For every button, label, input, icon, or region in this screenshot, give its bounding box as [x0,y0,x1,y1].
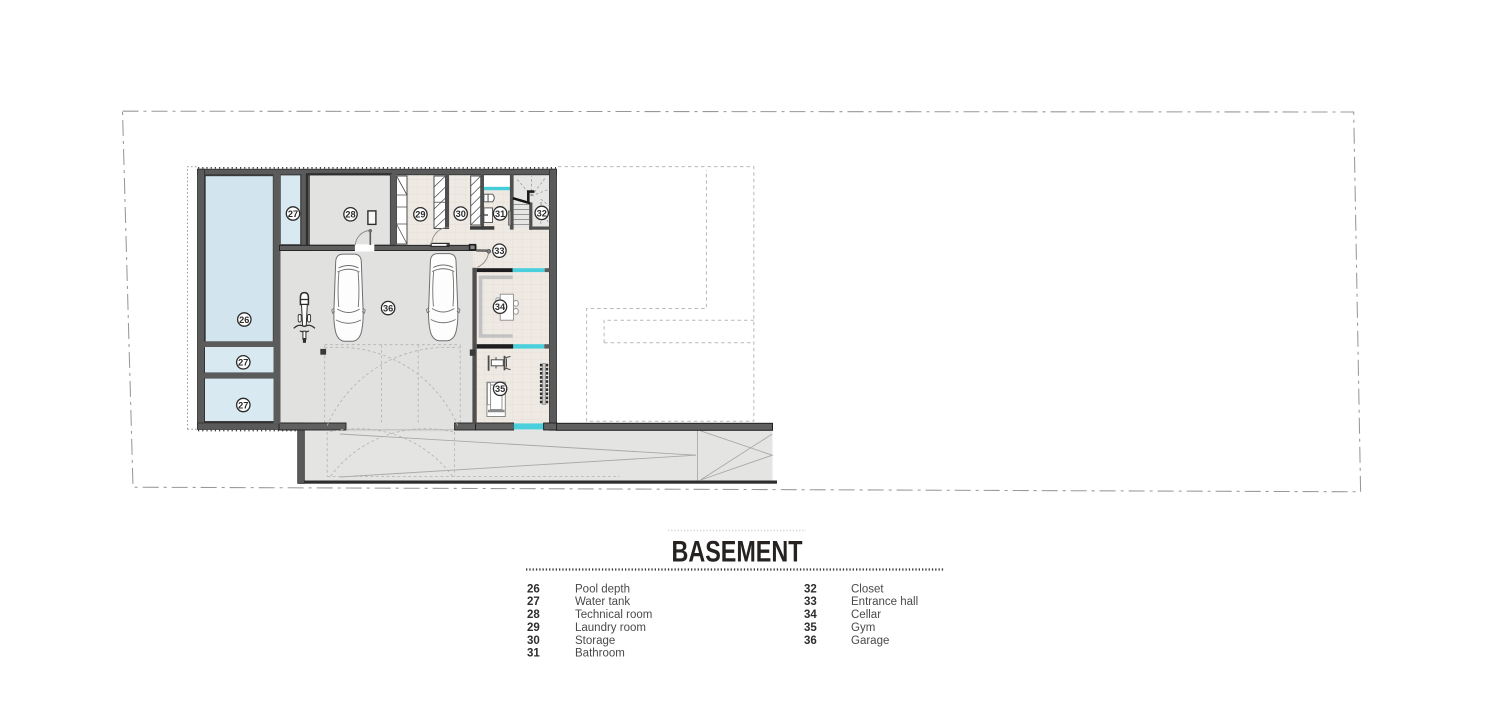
svg-text:Gym: Gym [851,622,875,634]
svg-text:Cellar: Cellar [851,609,881,621]
svg-text:Pool depth: Pool depth [575,583,630,595]
svg-text:36: 36 [804,635,817,647]
svg-text:29: 29 [527,622,540,634]
svg-text:Garage: Garage [851,635,889,647]
svg-text:27: 27 [288,209,298,219]
svg-text:30: 30 [527,635,540,647]
svg-text:BASEMENT: BASEMENT [672,536,803,569]
svg-text:33: 33 [804,596,817,608]
svg-text:27: 27 [238,400,248,410]
svg-text:28: 28 [345,210,355,220]
svg-text:Bathroom: Bathroom [575,648,625,660]
svg-text:36: 36 [383,304,393,314]
svg-text:27: 27 [238,358,248,368]
svg-text:32: 32 [804,583,817,595]
svg-text:Laundry room: Laundry room [575,622,646,634]
svg-text:34: 34 [495,302,506,312]
svg-text:28: 28 [527,609,540,621]
svg-text:Water tank: Water tank [575,596,630,608]
svg-text:26: 26 [239,315,249,325]
svg-text:Closet: Closet [851,583,884,595]
svg-text:Entrance hall: Entrance hall [851,596,918,608]
svg-text:31: 31 [495,209,505,219]
svg-text:Storage: Storage [575,635,615,647]
svg-text:32: 32 [537,208,547,218]
svg-text:35: 35 [495,384,505,394]
svg-text:27: 27 [527,596,540,608]
svg-text:33: 33 [494,246,504,256]
svg-text:31: 31 [527,648,540,660]
svg-text:29: 29 [415,210,425,220]
svg-text:30: 30 [456,209,466,219]
svg-text:26: 26 [527,583,540,595]
svg-text:34: 34 [804,609,817,621]
svg-text:Technical room: Technical room [575,609,652,621]
svg-text:35: 35 [804,622,817,634]
